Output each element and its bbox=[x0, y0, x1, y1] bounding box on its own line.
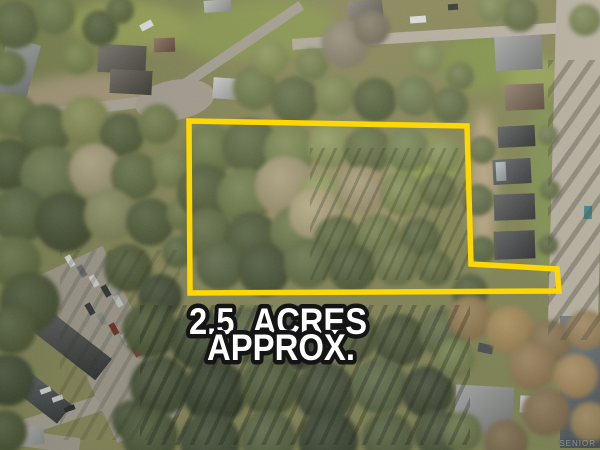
car bbox=[410, 15, 426, 23]
aerial-photo: 2.5 ACRES APPROX. SENIOR bbox=[0, 0, 600, 450]
building-roof bbox=[497, 125, 535, 148]
building-roof bbox=[204, 0, 232, 13]
building-roof bbox=[505, 83, 545, 110]
tree-canopy bbox=[354, 10, 390, 46]
tree-canopy bbox=[238, 244, 290, 296]
tree-canopy bbox=[468, 136, 496, 164]
tree-canopy bbox=[196, 242, 244, 290]
photographer-watermark: SENIOR bbox=[559, 439, 596, 448]
tree-canopy bbox=[395, 76, 435, 116]
tree-canopy bbox=[413, 43, 443, 73]
shadow-streaks bbox=[310, 148, 468, 280]
tree-canopy bbox=[554, 354, 598, 398]
car bbox=[448, 4, 458, 11]
tree-canopy bbox=[522, 388, 570, 436]
tree-canopy bbox=[484, 420, 528, 450]
tree-canopy bbox=[271, 76, 319, 124]
building-roof bbox=[494, 230, 536, 259]
shadow-streaks bbox=[60, 250, 180, 440]
tree-canopy bbox=[35, 0, 75, 34]
tree-canopy bbox=[252, 40, 288, 76]
tree-canopy bbox=[446, 62, 474, 90]
tree-canopy bbox=[432, 87, 468, 123]
tree-canopy bbox=[0, 410, 27, 450]
tree-canopy bbox=[468, 236, 496, 264]
building-roof bbox=[494, 193, 536, 220]
tree-canopy bbox=[569, 4, 600, 36]
tree-canopy bbox=[62, 42, 94, 74]
tree-canopy bbox=[138, 104, 178, 144]
building-roof bbox=[154, 38, 175, 53]
tree-canopy bbox=[0, 1, 39, 49]
building-roof bbox=[494, 35, 543, 71]
building-roof bbox=[109, 69, 152, 95]
building-roof bbox=[496, 162, 507, 181]
shadow-streaks bbox=[548, 60, 600, 340]
shadow-streaks bbox=[140, 305, 470, 445]
tree-canopy bbox=[315, 75, 355, 115]
tree-canopy bbox=[353, 78, 397, 122]
tree-canopy bbox=[508, 342, 556, 390]
